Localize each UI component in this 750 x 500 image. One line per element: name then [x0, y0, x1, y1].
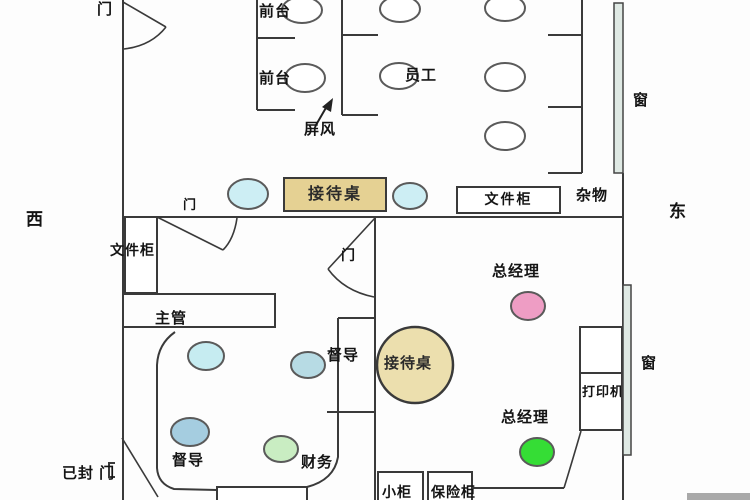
- chair-supervisor-2: [171, 418, 209, 446]
- top-door-swing: [123, 2, 166, 49]
- gm-corner-door-arc: [564, 431, 581, 488]
- east-window-top: [614, 3, 623, 173]
- file-cabinet-right-label: 文件柜: [457, 187, 560, 213]
- chair-reception-right: [393, 183, 427, 209]
- frontdesk-label-1: 前台: [259, 4, 291, 21]
- printer-cabinet-upper: [580, 327, 622, 373]
- chair-staff-5: [485, 122, 525, 150]
- gm-label-2: 总经理: [501, 410, 549, 427]
- frontdesk-partition-2: [342, 0, 378, 115]
- small-cabinet-label: 小柜: [382, 485, 412, 500]
- sundries-label: 杂物: [576, 188, 608, 205]
- chair-manager: [188, 342, 224, 370]
- chair-gm-2: [520, 438, 554, 466]
- chair-gm-1: [511, 292, 545, 320]
- supervisor-label-1: 督导: [327, 348, 359, 365]
- middle-left-door-swing: [157, 217, 237, 250]
- manager-desk: [123, 294, 275, 327]
- printer-label: 打印机: [582, 385, 621, 399]
- middle-door-label: 门: [341, 248, 356, 263]
- chair-staff-2: [485, 0, 525, 21]
- reception-table-label: 接待桌: [384, 356, 432, 373]
- chair-reception-left: [228, 179, 268, 209]
- window-bottom-label: 窗: [641, 356, 657, 373]
- compass-west: 西: [26, 211, 44, 230]
- gm-label-1: 总经理: [492, 264, 540, 281]
- finance-label: 财务: [301, 455, 333, 472]
- screen-label: 屏风: [304, 122, 336, 139]
- reception-desk-label: 接待桌: [284, 178, 386, 211]
- chair-supervisor-1: [291, 352, 325, 378]
- top-door-label: 门: [97, 2, 113, 19]
- scrollbar-fragment: [687, 493, 750, 500]
- office-floorplan: 门 前台 前台 员工 屏风 接待桌 窗 西 东 杂物 文件柜 门 门 文件柜 主…: [0, 0, 750, 500]
- chair-staff-4: [485, 63, 525, 91]
- safe-label: 保险柜: [431, 485, 476, 500]
- supervisor-label-2: 督导: [172, 453, 204, 470]
- east-window-bottom: [623, 285, 631, 455]
- chair-finance: [264, 436, 298, 462]
- small-door-label: 门: [183, 198, 197, 212]
- staff-label: 员工: [405, 68, 437, 85]
- manager-label: 主管: [155, 311, 187, 328]
- chairs: [171, 0, 554, 466]
- sealed-door-leaf: [122, 438, 158, 497]
- sealed-door-label: 已封 门: [62, 466, 115, 483]
- bottom-desk: [217, 487, 307, 500]
- file-cabinet-left-label: 文件柜: [110, 243, 155, 258]
- staff-partition: [548, 0, 582, 173]
- chair-staff-1: [380, 0, 420, 22]
- frontdesk-label-2: 前台: [259, 71, 291, 88]
- window-top-label: 窗: [633, 93, 649, 110]
- compass-east: 东: [669, 203, 687, 222]
- printer-cabinet-lower: [580, 373, 622, 430]
